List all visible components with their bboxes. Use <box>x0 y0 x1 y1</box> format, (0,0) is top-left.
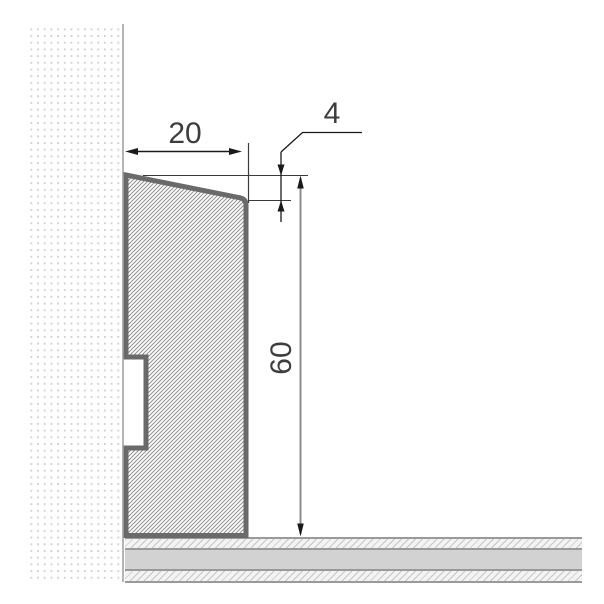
wall-section-stippled <box>26 24 124 582</box>
arrow-down-icon <box>278 165 285 176</box>
floor-core-layer <box>125 550 582 569</box>
dimension-height-60 <box>297 176 304 537</box>
height-dimension-value: 60 <box>267 341 297 374</box>
arrow-up-icon <box>297 176 304 189</box>
skirting-profile-outline <box>126 175 246 536</box>
skirting-profile <box>123 170 252 542</box>
floor-section <box>125 537 582 583</box>
arrow-left-icon <box>125 148 138 155</box>
arrow-up-icon <box>278 201 285 212</box>
technical-drawing-canvas: 20 4 60 <box>0 0 604 604</box>
width-dimension-value: 20 <box>168 119 201 149</box>
floor-hatch-layer-bottom <box>125 571 582 581</box>
floor-bottom-line <box>125 581 582 583</box>
bevel-leader-line <box>281 133 362 153</box>
bevel-dimension-value: 4 <box>324 99 341 129</box>
arrow-right-icon <box>229 148 242 155</box>
arrow-down-icon <box>297 524 304 537</box>
